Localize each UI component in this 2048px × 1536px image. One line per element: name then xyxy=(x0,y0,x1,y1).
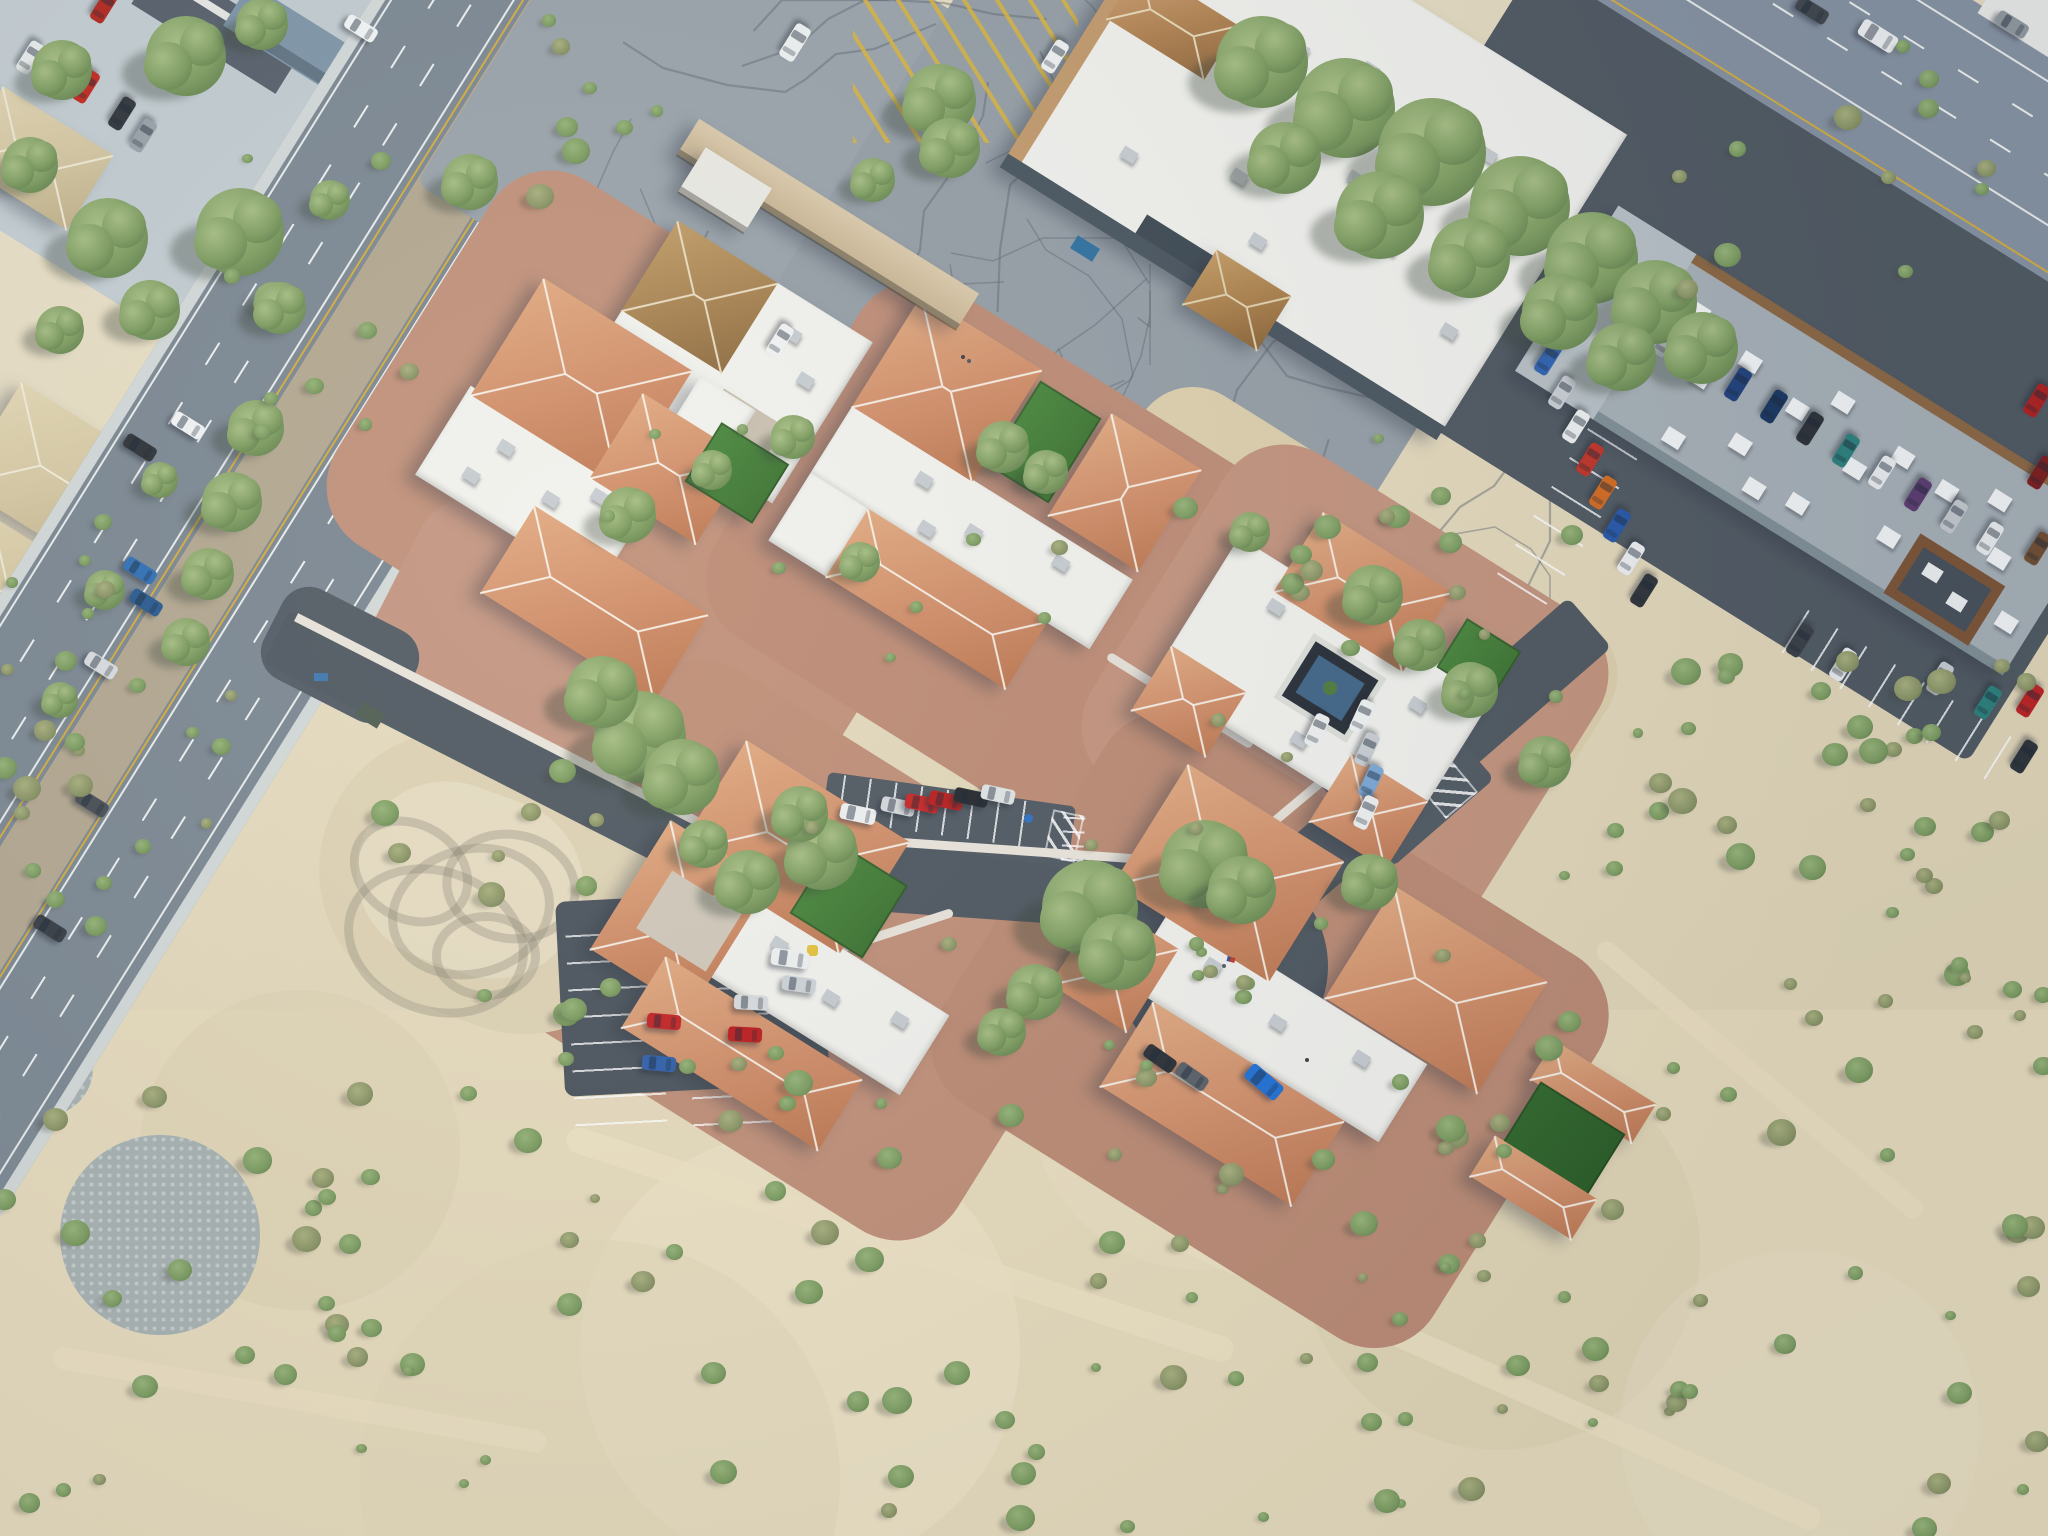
aerial-photo xyxy=(0,0,2048,1536)
photo-haze xyxy=(0,0,2048,1536)
